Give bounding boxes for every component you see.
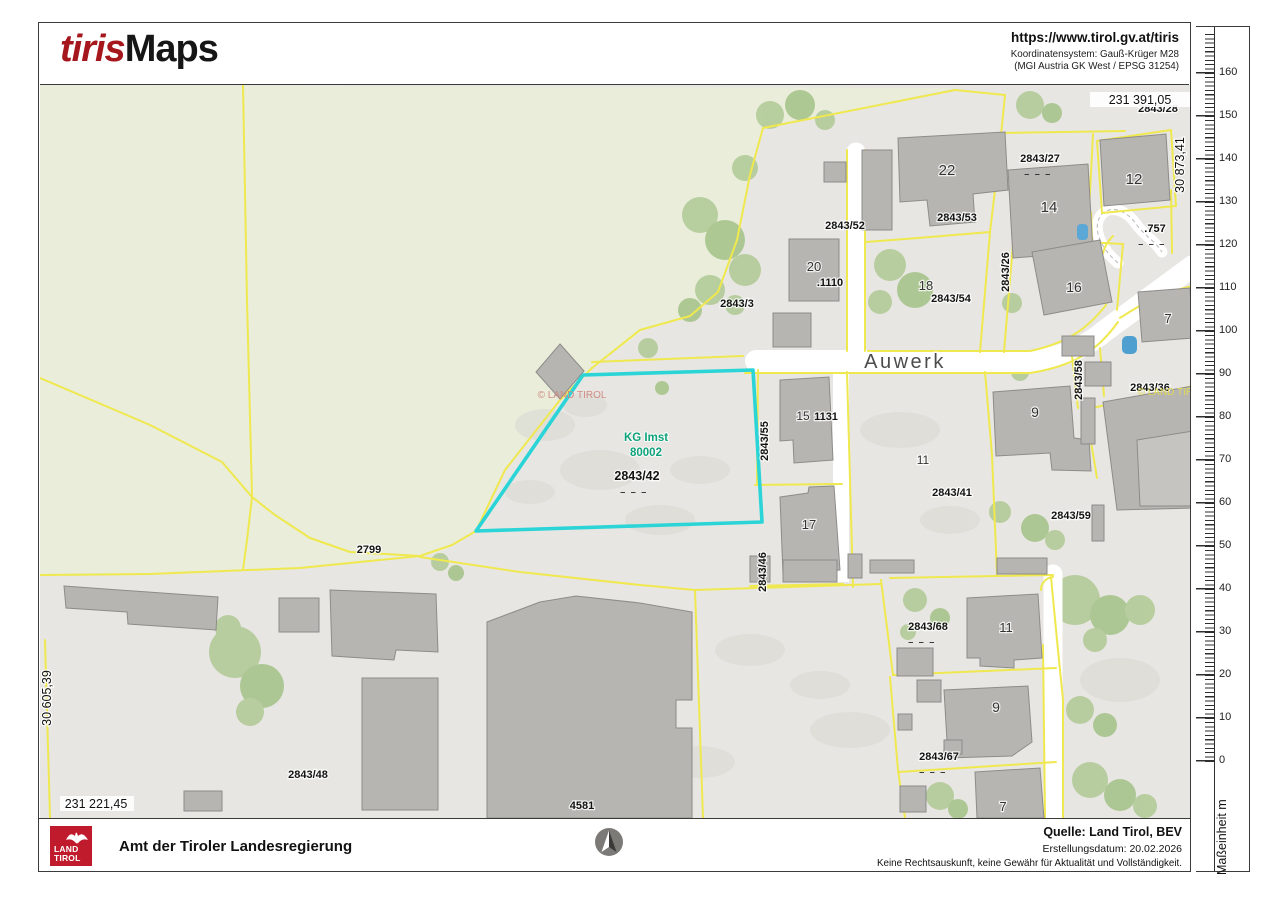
logo-text-tirol: TIROL xyxy=(54,854,81,863)
map-canvas[interactable]: 2843/3 2843/52 2843/53 22 2843/27 – – – … xyxy=(40,85,1190,818)
building-label-15: 15 xyxy=(796,409,810,423)
creation-date: Erstellungsdatum: 20.02.2026 xyxy=(877,843,1182,855)
parcel-label-2843-27: 2843/27 xyxy=(1020,153,1060,165)
coordinate-label-bottom: 231 221,45 xyxy=(65,797,128,811)
ruler-tick-label: 110 xyxy=(1219,281,1247,295)
logo-maps: Maps xyxy=(125,28,218,70)
building-label-11-mid: 11 xyxy=(917,453,930,467)
building-label-14: 14 xyxy=(1041,199,1058,216)
parcel-label-2799: 2799 xyxy=(357,544,381,556)
crs-line1: Koordinatensystem: Gauß-Krüger M28 xyxy=(1011,49,1179,61)
ruler-tick-label: 0 xyxy=(1219,754,1247,768)
parcel-label-2843-46: 2843/46 xyxy=(757,552,769,592)
building-4581 xyxy=(487,596,692,818)
parcel-label-2843-55: 2843/55 xyxy=(759,421,771,461)
building-label-20: 20 xyxy=(807,259,821,274)
ruler-tick-label: 50 xyxy=(1219,539,1247,553)
disclaimer-text: Keine Rechtsauskunft, keine Gewähr für A… xyxy=(877,858,1182,869)
ruler-unit-label: Maßeinheit m xyxy=(1215,789,1233,875)
ruler-tick-label: 130 xyxy=(1219,195,1247,209)
parcel-label-1131: 1131 xyxy=(814,411,838,423)
ruler-baseline xyxy=(1214,27,1215,871)
building-label-7-bottom: 7 xyxy=(999,799,1006,814)
ruler-tick-label: 140 xyxy=(1219,152,1247,166)
footer-title: Amt der Tiroler Landesregierung xyxy=(119,838,352,855)
parcel-dashes: – – – xyxy=(620,487,648,497)
tiris-url: https://www.tirol.gv.at/tiris xyxy=(1011,30,1179,45)
building-label-7-top: 7 xyxy=(1164,311,1171,326)
crs-info: Koordinatensystem: Gauß-Krüger M28 (MGI … xyxy=(1011,49,1179,72)
tiris-maps-logo: tirisMaps xyxy=(60,28,218,71)
kg-label-line1: KG Imst xyxy=(624,432,668,444)
parcel-label-2843-41: 2843/41 xyxy=(932,487,972,499)
parcel-label-2843-67: 2843/67 xyxy=(919,751,959,763)
north-arrow-icon xyxy=(594,827,624,862)
watermark-land-tirol-yellow: © LAND TIROL xyxy=(1138,387,1190,398)
parcel-label-2843-26: 2843/26 xyxy=(1000,252,1012,292)
pool-top xyxy=(1077,224,1088,240)
parcel-label-4581: 4581 xyxy=(570,800,594,812)
building-label-12: 12 xyxy=(1126,171,1143,188)
parcel-dashes: – – – xyxy=(1138,239,1166,249)
land-tirol-logo: LAND TIROL xyxy=(50,826,92,866)
building-label-11-bottom: 11 xyxy=(999,620,1013,635)
building-7-bottom xyxy=(975,768,1044,818)
parcel-label-2843-68: 2843/68 xyxy=(908,621,948,633)
footer: LAND TIROL Amt der Tiroler Landesregieru… xyxy=(38,818,1191,872)
footer-meta: Quelle: Land Tirol, BEV Erstellungsdatum… xyxy=(877,825,1182,869)
parcel-label-2843-58: 2843/58 xyxy=(1073,360,1085,400)
logo-tiris: tiris xyxy=(60,28,125,70)
parcel-dashes: – – – xyxy=(919,767,947,777)
parcel-label-757: .757 xyxy=(1144,223,1165,235)
coordinate-label-right: 30 873,41 xyxy=(1173,137,1187,193)
building-label-22: 22 xyxy=(939,162,956,179)
crs-line2: (MGI Austria GK West / EPSG 31254) xyxy=(1011,61,1179,73)
parcel-label-1110: .1110 xyxy=(817,277,843,289)
header: tirisMaps https://www.tirol.gv.at/tiris … xyxy=(40,24,1189,85)
building-label-9-bottom: 9 xyxy=(992,699,1000,715)
ruler-tick-label: 160 xyxy=(1219,66,1247,80)
source-text: Quelle: Land Tirol, BEV xyxy=(877,825,1182,839)
tiris-maps-page: tirisMaps https://www.tirol.gv.at/tiris … xyxy=(0,0,1280,905)
ruler-tick-label: 90 xyxy=(1219,367,1247,381)
coordinate-label-top: 231 391,05 xyxy=(1109,93,1172,107)
street-label-auwerk: Auwerk xyxy=(864,351,946,373)
building-16 xyxy=(1032,240,1112,315)
building-label-17: 17 xyxy=(802,517,816,532)
ruler-tick-label: 10 xyxy=(1219,711,1247,725)
ruler-tick-label: 40 xyxy=(1219,582,1247,596)
parcel-label-2843-52: 2843/52 xyxy=(825,220,865,232)
parcel-dashes: – – – xyxy=(1024,169,1052,179)
parcel-label-2843-54: 2843/54 xyxy=(931,293,972,305)
watermark-land-tirol-red: © LAND TIROL xyxy=(538,390,607,401)
parcel-label-2843-3: 2843/3 xyxy=(720,298,754,310)
ruler-tick-label: 100 xyxy=(1219,324,1247,338)
building-label-9-mid: 9 xyxy=(1031,404,1039,420)
coordinate-label-left: 30 605,39 xyxy=(40,670,54,726)
kg-label-line2: 80002 xyxy=(630,447,662,459)
parcel-dashes: – – – xyxy=(908,637,936,647)
ruler-tick-label: 120 xyxy=(1219,238,1247,252)
ruler-tick-label: 30 xyxy=(1219,625,1247,639)
parcel-label-2843-48: 2843/48 xyxy=(288,769,328,781)
building-label-16: 16 xyxy=(1066,279,1082,295)
building-12 xyxy=(1100,134,1170,206)
ruler-tick-label: 60 xyxy=(1219,496,1247,510)
pool-right xyxy=(1122,336,1137,354)
header-meta: https://www.tirol.gv.at/tiris Koordinate… xyxy=(1011,30,1179,72)
ruler-tick-label: 80 xyxy=(1219,410,1247,424)
parcel-label-2843-59: 2843/59 xyxy=(1051,510,1091,522)
building-label-18: 18 xyxy=(919,278,933,293)
ruler-major-ticks xyxy=(1196,72,1214,762)
parcel-label-2843-53: 2843/53 xyxy=(937,212,977,224)
ruler-tick-label: 150 xyxy=(1219,109,1247,123)
ruler-tick-label: 70 xyxy=(1219,453,1247,467)
scale-ruler: 0102030405060708090100110120130140150160… xyxy=(1196,26,1250,872)
ruler-tick-label: 20 xyxy=(1219,668,1247,682)
parcel-label-2843-42: 2843/42 xyxy=(614,469,659,483)
